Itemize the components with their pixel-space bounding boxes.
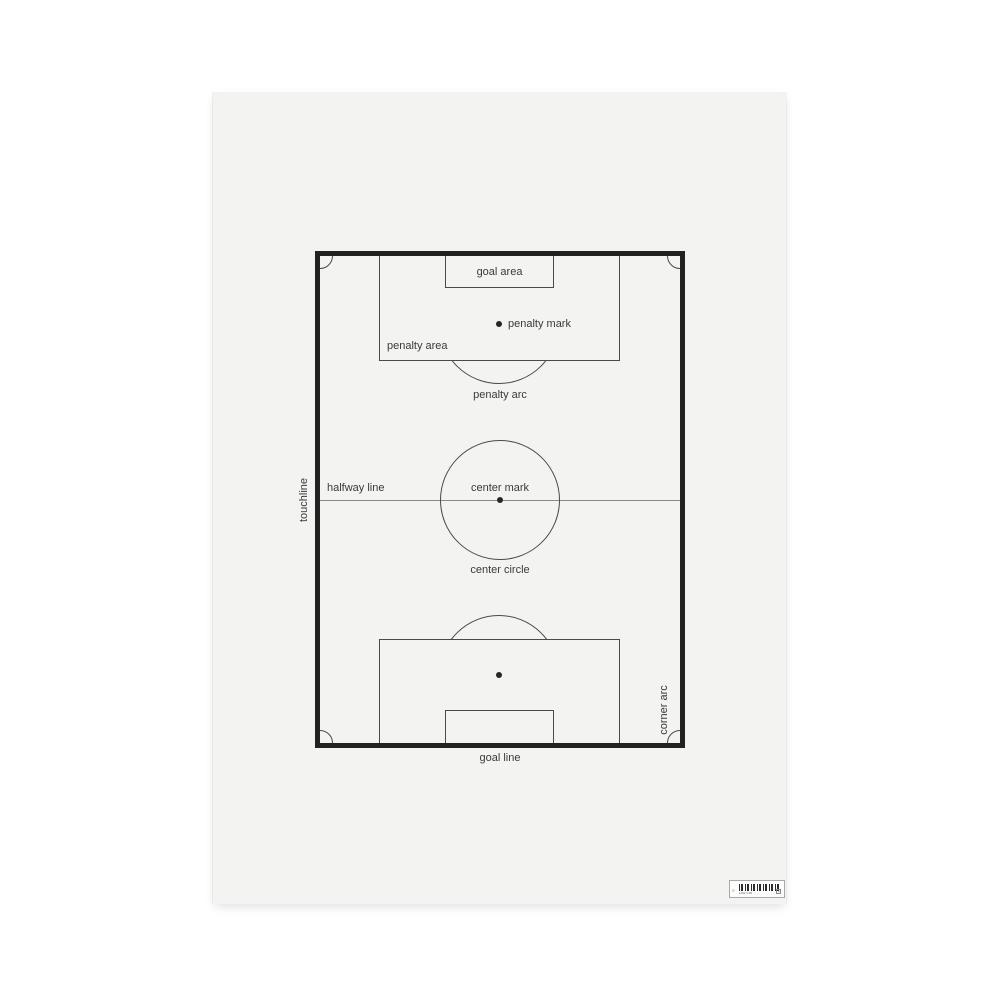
corner-arc-bottom-left [320,730,333,743]
barcode-sticker: ||| LAW 1:00 a [729,880,785,898]
penalty-arc-icon [439,361,559,384]
penalty-mark-label: penalty mark [508,318,571,330]
goal-area-bottom [445,710,554,743]
goal-line-label: goal line [450,752,550,764]
penalty-arc-label: penalty arc [450,389,550,401]
barcode-icon [739,884,779,891]
center-mark-dot [497,497,503,503]
penalty-area-label: penalty area [387,340,448,352]
corner-arc-label: corner arc [658,675,670,745]
barcode-caption: LAW 1:00 [739,892,752,895]
corner-arc-icon [320,256,333,269]
penalty-arc-icon [439,615,559,639]
corner-arc-icon [320,730,333,743]
corner-arc-top-right [667,256,680,269]
center-mark-label: center mark [450,482,550,494]
barcode-side-microtext: ||| [732,885,736,892]
goal-area-label: goal area [477,266,523,278]
center-circle-label: center circle [450,564,550,576]
penalty-mark-dot-top [496,321,502,327]
football-pitch-diagram: goal area penalty mark penalty area pena… [315,251,685,748]
poster-sheet: goal area penalty mark penalty area pena… [213,92,786,904]
penalty-mark-dot-bottom [496,672,502,678]
halfway-line-label: halfway line [327,482,384,494]
goal-area-top: goal area [445,256,554,288]
page: goal area penalty mark penalty area pena… [0,0,1000,1000]
touchline-label: touchline [298,465,310,535]
corner-arc-icon [667,256,680,269]
penalty-arc-top [438,361,560,386]
penalty-arc-bottom [438,614,560,639]
corner-arc-top-left [320,256,333,269]
barcode-box-mark: a [776,889,781,894]
